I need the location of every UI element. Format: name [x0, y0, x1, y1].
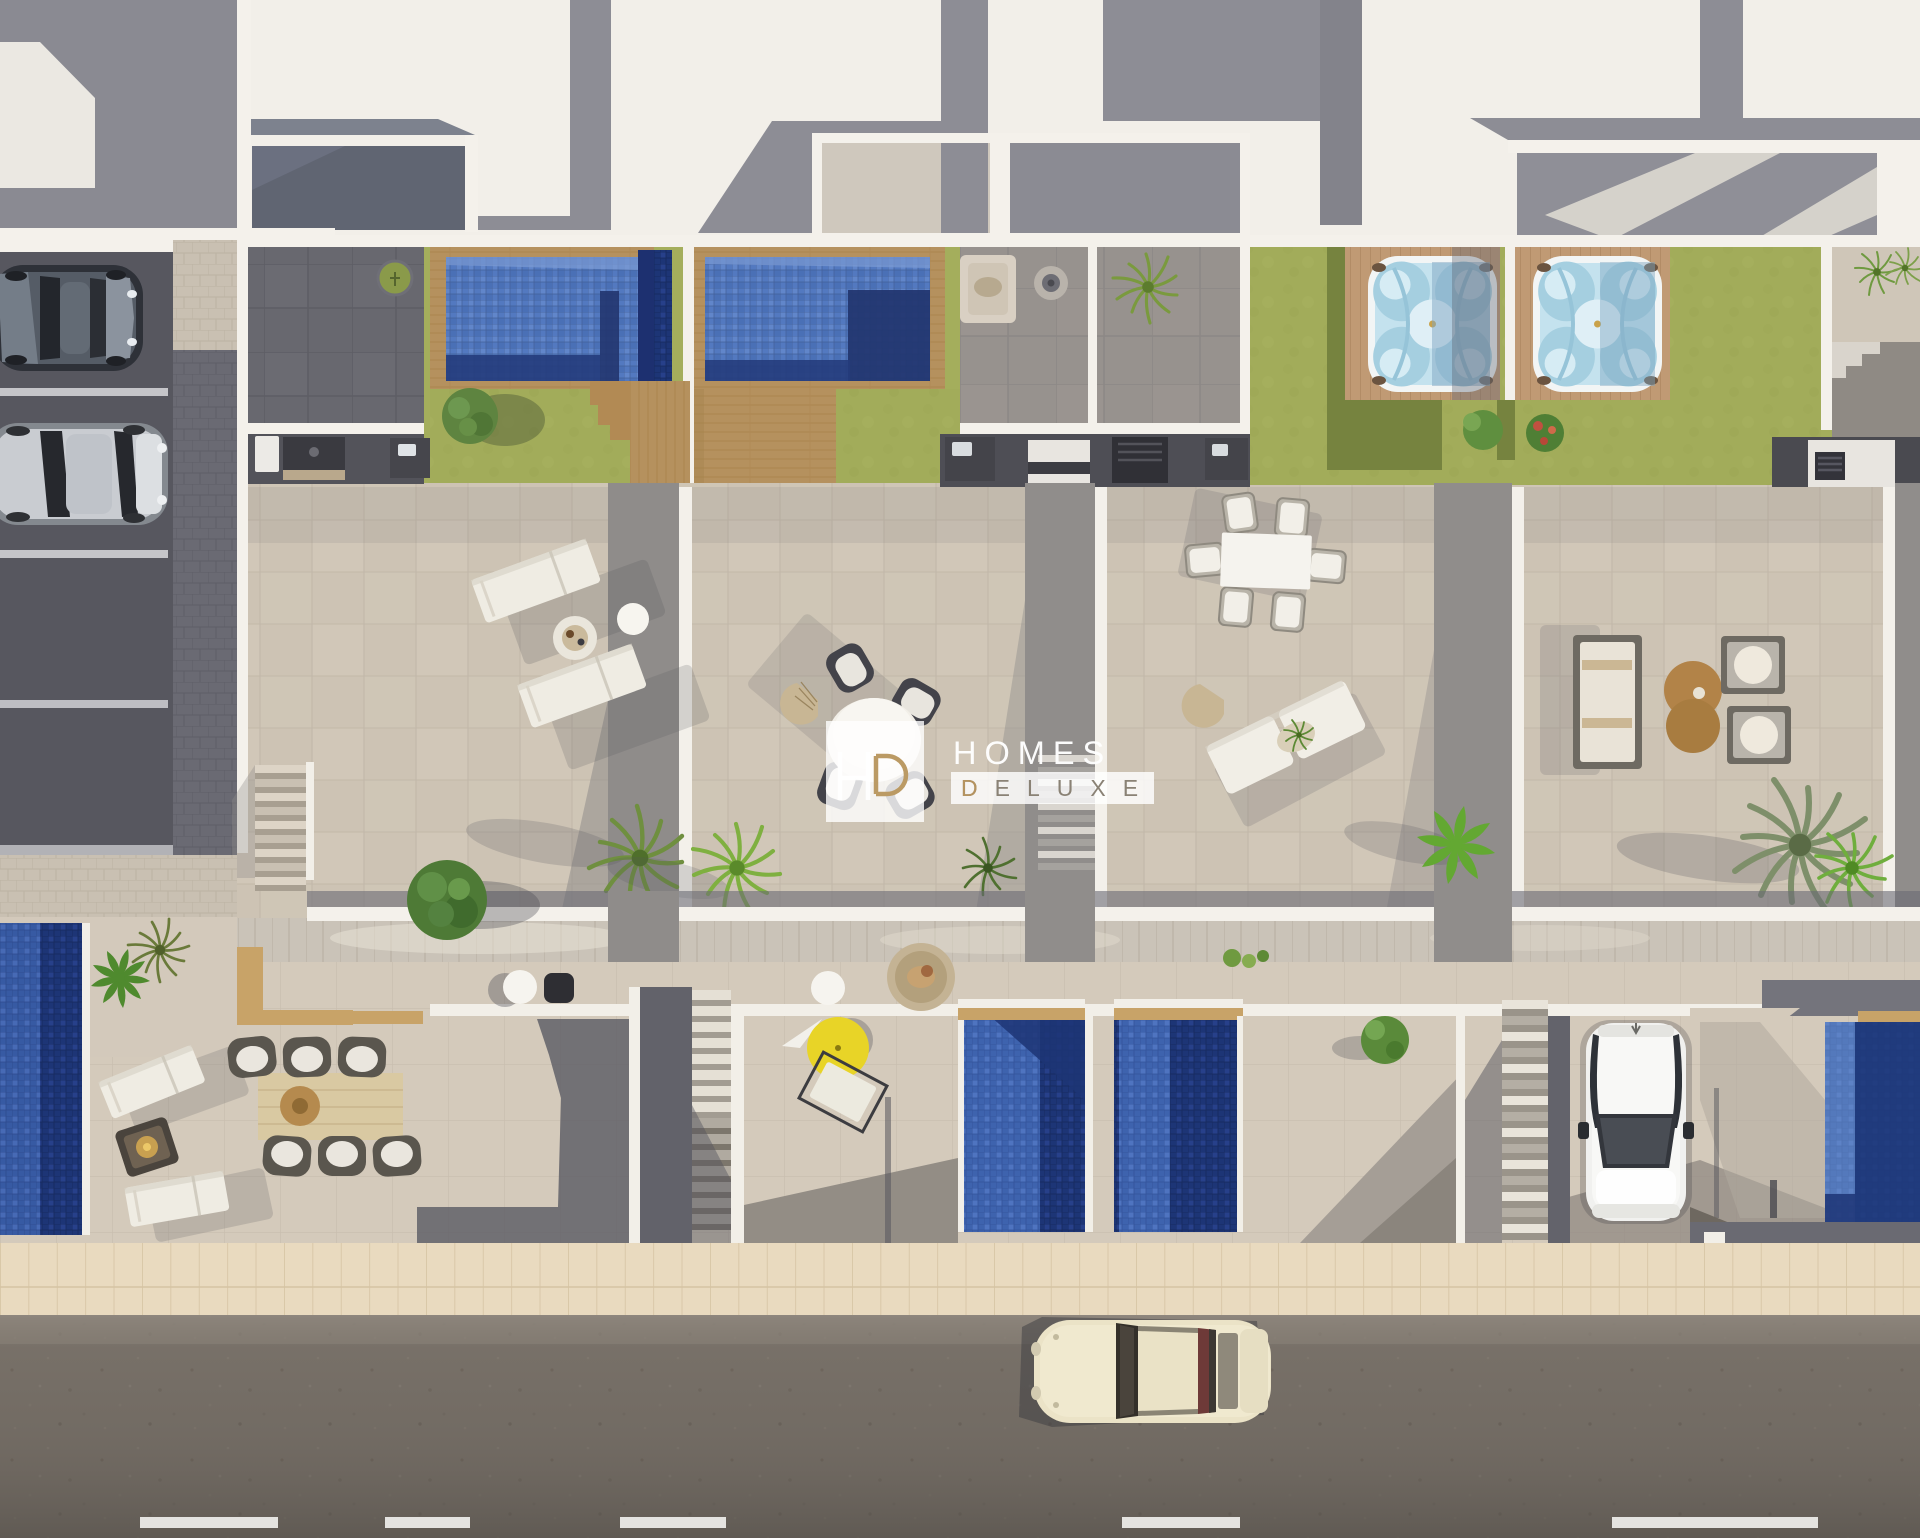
svg-text:D: D [961, 775, 995, 801]
svg-text:HOMES: HOMES [953, 735, 1112, 771]
